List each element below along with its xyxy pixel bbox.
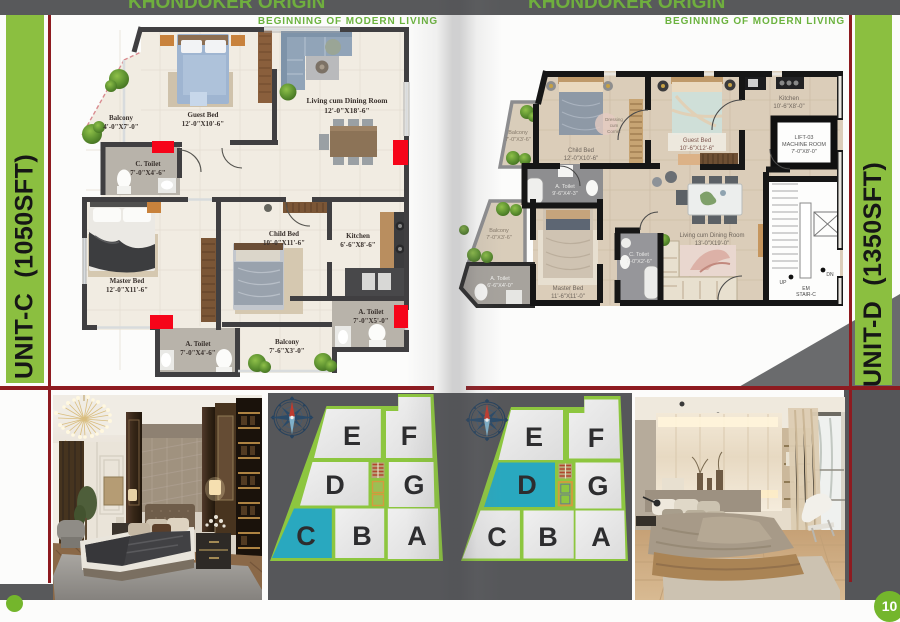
- svg-text:UP: UP: [780, 280, 788, 286]
- svg-text:12'-0"X11'-6": 12'-0"X11'-6": [106, 286, 148, 294]
- svg-text:C: C: [487, 522, 507, 552]
- svg-text:7'-0"X4'-6": 7'-0"X4'-6": [130, 169, 165, 177]
- svg-text:STAIR-C: STAIR-C: [796, 292, 816, 298]
- svg-text:9'-6"X4'-3": 9'-6"X4'-3": [552, 191, 578, 197]
- svg-text:Child Bed: Child Bed: [568, 148, 594, 154]
- svg-text:Living cum Dining Room: Living cum Dining Room: [306, 96, 388, 105]
- svg-text:A: A: [407, 521, 427, 551]
- svg-text:cum: cum: [610, 123, 619, 128]
- svg-text:LIFT-03: LIFT-03: [795, 135, 814, 141]
- svg-text:A. Toilet: A. Toilet: [490, 276, 510, 282]
- svg-text:6'-6"X8'-6": 6'-6"X8'-6": [340, 241, 375, 249]
- svg-text:F: F: [401, 421, 418, 451]
- svg-text:12'-0"X10'-6": 12'-0"X10'-6": [564, 156, 599, 162]
- svg-text:7'-0"X4'-6": 7'-0"X4'-6": [180, 349, 215, 357]
- svg-text:Master Bed: Master Bed: [553, 286, 584, 292]
- svg-text:D: D: [517, 470, 537, 500]
- svg-text:B: B: [538, 522, 558, 552]
- svg-text:7'-0"X3'-6": 7'-0"X3'-6": [505, 137, 531, 143]
- svg-text:4'-0"X7'-0": 4'-0"X7'-0": [103, 123, 138, 131]
- svg-text:10'-6"X8'-0": 10'-6"X8'-0": [773, 104, 804, 110]
- svg-text:A. Toilet: A. Toilet: [555, 184, 575, 190]
- svg-text:DN: DN: [826, 272, 834, 278]
- svg-text:E: E: [525, 422, 543, 452]
- svg-text:Kitchen: Kitchen: [346, 232, 370, 240]
- svg-text:11'-6"X11'-0": 11'-6"X11'-0": [551, 294, 585, 300]
- svg-text:G: G: [587, 471, 608, 501]
- svg-text:Balcony: Balcony: [109, 114, 134, 122]
- svg-text:E: E: [343, 421, 361, 451]
- svg-text:F: F: [588, 423, 605, 453]
- svg-text:13'-0"X19'-0": 13'-0"X19'-0": [695, 241, 730, 247]
- svg-text:A. Toilet: A. Toilet: [358, 308, 384, 316]
- svg-text:C. Toilet: C. Toilet: [629, 252, 649, 258]
- svg-text:MACHINE ROOM: MACHINE ROOM: [782, 142, 826, 148]
- svg-text:10'-6"X12'-6": 10'-6"X12'-6": [680, 146, 715, 152]
- svg-text:Balcony: Balcony: [508, 130, 528, 136]
- svg-text:Guest Bed: Guest Bed: [683, 138, 711, 144]
- svg-text:6'-6"X4'-0": 6'-6"X4'-0": [487, 283, 513, 289]
- svg-text:Guest Bed: Guest Bed: [188, 111, 219, 119]
- svg-text:Master Bed: Master Bed: [110, 277, 145, 285]
- svg-text:B: B: [352, 521, 372, 551]
- svg-text:G: G: [403, 470, 424, 500]
- svg-text:7'-0"X3'-6": 7'-0"X3'-6": [486, 235, 512, 241]
- svg-text:A: A: [591, 522, 611, 552]
- svg-text:Kitchen: Kitchen: [779, 96, 799, 102]
- svg-text:7'-6"X3'-0": 7'-6"X3'-0": [269, 347, 304, 355]
- svg-text:7'-0"X8'-0": 7'-0"X8'-0": [791, 149, 817, 155]
- svg-text:A. Toilet: A. Toilet: [185, 340, 211, 348]
- svg-text:7'-0"X5'-0": 7'-0"X5'-0": [353, 317, 388, 325]
- svg-text:Balcony: Balcony: [489, 228, 509, 234]
- svg-text:Child Bed: Child Bed: [269, 230, 299, 238]
- svg-text:Balcony: Balcony: [275, 338, 300, 346]
- svg-text:12'-0"X18'-6": 12'-0"X18'-6": [324, 106, 369, 115]
- svg-text:C. Toilet: C. Toilet: [135, 160, 161, 168]
- svg-text:Corner: Corner: [607, 129, 621, 134]
- svg-text:7'-0"X2'-6": 7'-0"X2'-6": [626, 259, 652, 265]
- svg-text:Dressing: Dressing: [605, 117, 623, 122]
- svg-text:Living cum Dining Room: Living cum Dining Room: [679, 233, 744, 239]
- svg-text:10'-0"X11'-6": 10'-0"X11'-6": [263, 239, 305, 247]
- svg-text:D: D: [325, 470, 345, 500]
- svg-text:C: C: [296, 521, 316, 551]
- svg-text:12'-0"X10'-6": 12'-0"X10'-6": [182, 120, 224, 128]
